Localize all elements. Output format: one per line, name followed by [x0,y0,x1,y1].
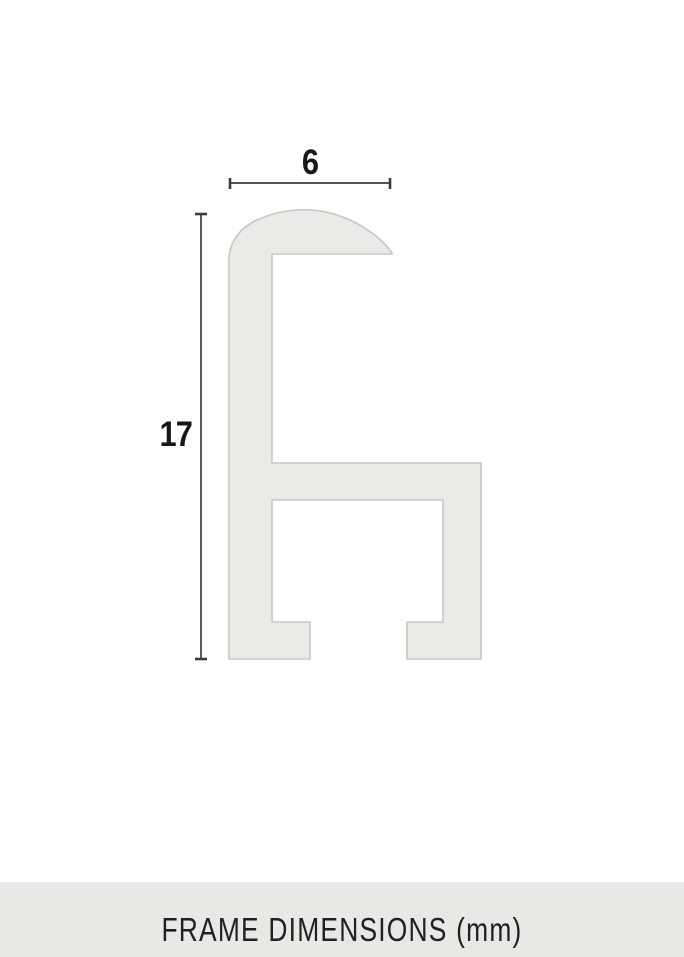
frame-profile-shape [229,210,481,659]
footer-caption-label: FRAME DIMENSIONS (mm) [68,911,615,949]
width-dimension-label: 6 [257,143,363,183]
height-dimension-label: 17 [102,415,192,455]
height-dimension-line [195,214,207,659]
frame-dimensions-page: 6 17 FRAME DIMENSIONS (mm) [0,0,684,957]
